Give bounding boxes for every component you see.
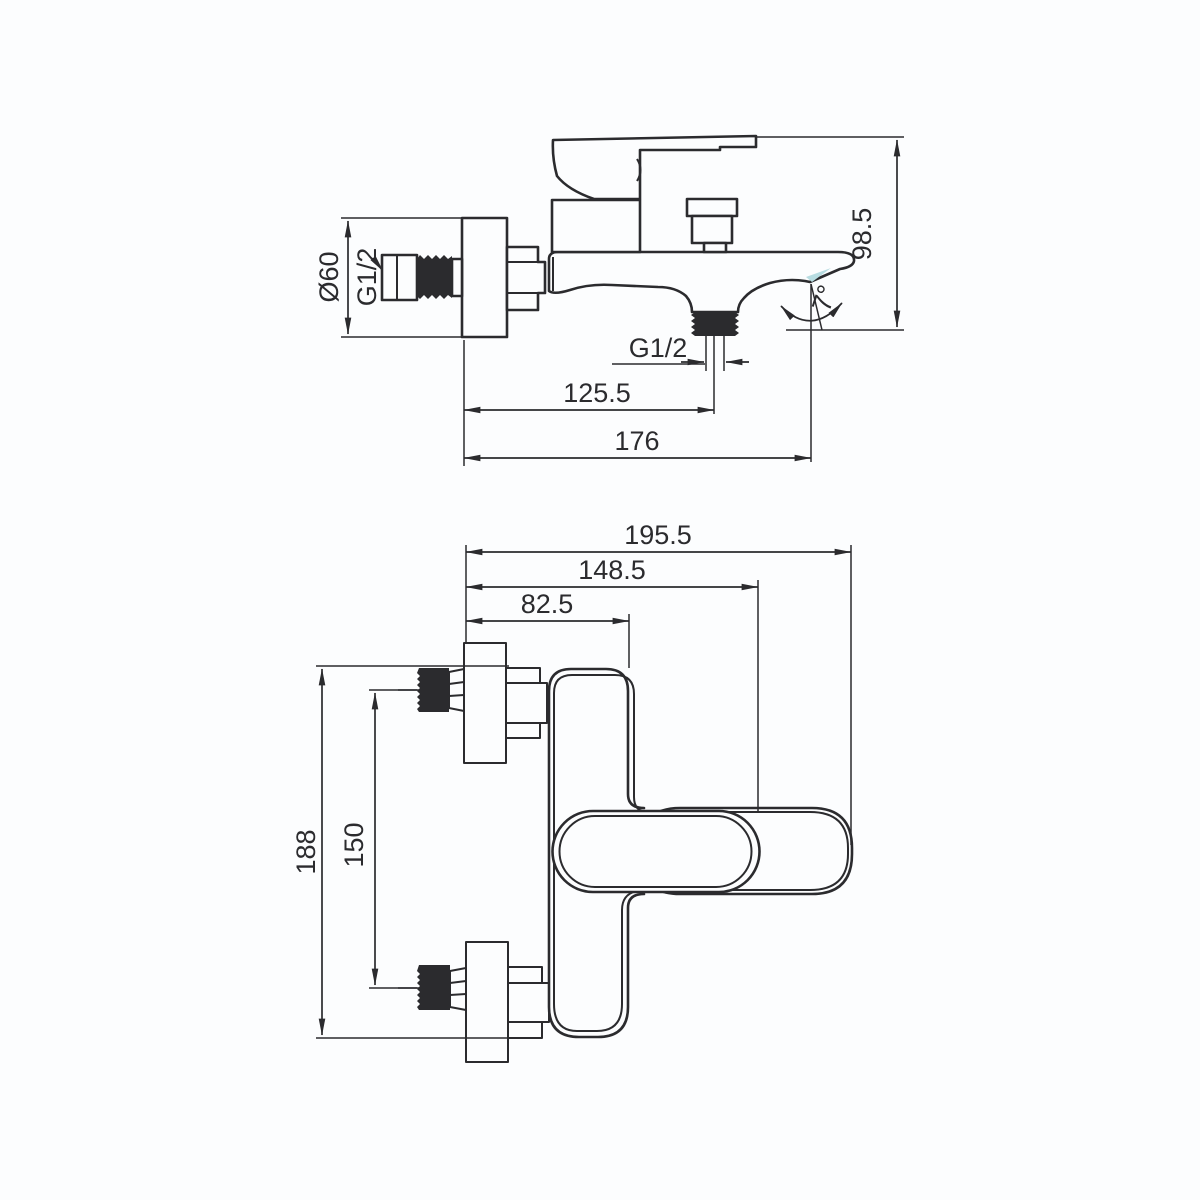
upper-adapter xyxy=(449,669,464,711)
technical-drawing-canvas: 7° Ø60 G1/2 98.5 G1/2 125.5 176 xyxy=(0,0,1200,1200)
dim-handle-width-label: 148.5 xyxy=(578,555,646,585)
upper-inlet-thread xyxy=(417,668,449,712)
lower-wall-plate xyxy=(466,942,508,1062)
diverter-knob-stem xyxy=(704,243,726,252)
dim-inlet-thread-label: G1/2 xyxy=(352,248,382,307)
lower-inlet-assembly xyxy=(417,942,549,1062)
outlet-thread xyxy=(691,312,739,336)
inlet-adapter xyxy=(382,255,417,300)
mixer-handle xyxy=(553,136,756,199)
dim-outlet-offset-label: 125.5 xyxy=(563,378,631,408)
connection-nut xyxy=(507,247,545,310)
wall-plate xyxy=(462,218,507,337)
side-view: 7° Ø60 G1/2 98.5 G1/2 125.5 176 xyxy=(314,136,904,466)
lower-inlet-thread xyxy=(417,965,450,1010)
lower-adapter xyxy=(450,968,466,1010)
dim-total-height-label: 188 xyxy=(291,829,321,874)
spout-angle-annotation: 7° xyxy=(781,281,843,330)
upper-inlet-assembly xyxy=(417,643,547,763)
dim-total-width-label: 195.5 xyxy=(624,520,692,550)
dim-height-label: 98.5 xyxy=(847,208,877,261)
cartridge-housing xyxy=(552,200,640,252)
upper-wall-plate xyxy=(464,643,506,763)
upper-nut xyxy=(506,668,547,738)
lower-nut xyxy=(508,967,549,1038)
diverter-knob-body xyxy=(692,216,732,243)
technical-drawing-page: 7° Ø60 G1/2 98.5 G1/2 125.5 176 xyxy=(0,0,1200,1200)
inlet-spacer xyxy=(452,259,462,296)
dim-inlet-spacing-label: 150 xyxy=(339,822,369,867)
dim-outlet-thread-label: G1/2 xyxy=(629,333,688,363)
dim-body-width-label: 82.5 xyxy=(521,589,574,619)
front-view: 195.5 148.5 82.5 188 150 xyxy=(291,520,852,1062)
front-spout-capsule xyxy=(553,811,760,892)
dim-diameter-label: Ø60 xyxy=(314,251,344,302)
diverter-knob-cap xyxy=(687,199,737,216)
inlet-thread xyxy=(417,255,452,299)
front-view-dimensions xyxy=(316,545,851,1038)
dim-total-length-label: 176 xyxy=(614,426,659,456)
